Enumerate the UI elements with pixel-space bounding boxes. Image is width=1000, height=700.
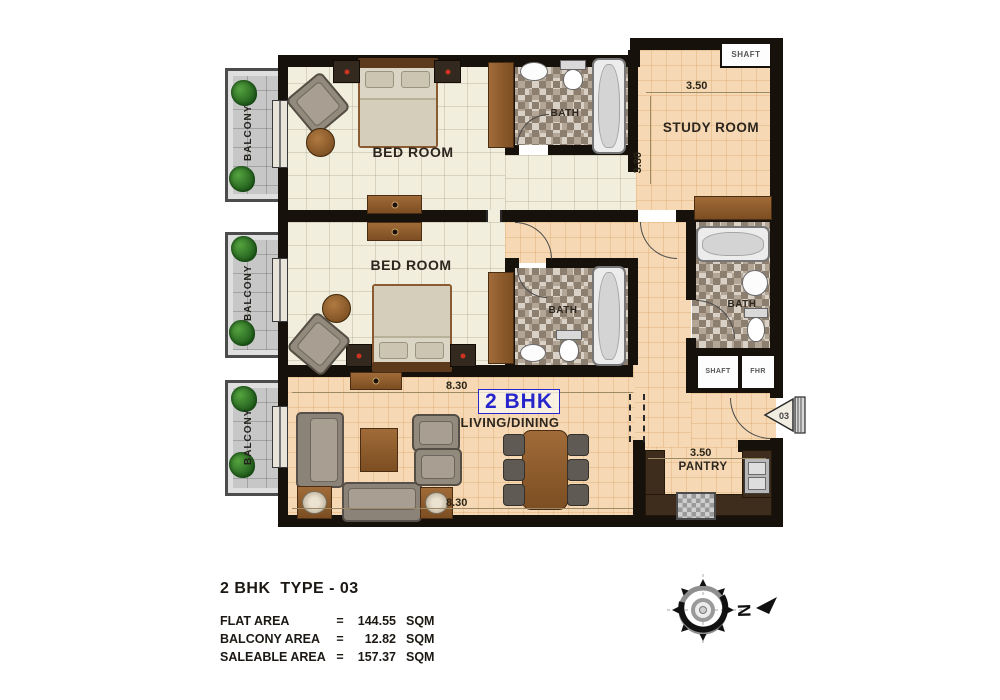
dresser-knob [392, 229, 397, 234]
study-width-dimline [646, 92, 770, 93]
wall-opening-marker [486, 210, 502, 222]
balcony1-sliding-door [272, 100, 288, 168]
shaft-top-box: SHAFT [720, 42, 772, 68]
living-label: LIVING/DINING [458, 416, 562, 430]
bed-headboard [372, 362, 452, 372]
bedroom2-bed [372, 284, 452, 372]
living-tv-console [350, 372, 402, 390]
bath3-tub [696, 226, 770, 262]
bedroom1-label: BED ROOM [358, 145, 468, 160]
entry-door-leaf [795, 397, 805, 433]
bedroom1-nightstand-left [333, 60, 360, 83]
bed-duvet [374, 286, 450, 338]
balcony2-sliding-door [272, 258, 288, 322]
balcony3-label: BALCONY [244, 400, 254, 474]
dining-table [522, 430, 568, 510]
pantry-label: PANTRY [672, 461, 734, 474]
fhr-box: FHR [740, 354, 776, 390]
balcony3-sliding-door [272, 406, 288, 468]
entry-number: 03 [779, 411, 789, 421]
bedroom1-nightstand-right [434, 60, 461, 83]
legend-row-flat-area: FLAT AREA = 144.55 SQM [220, 614, 480, 628]
legend-unit: SQM [406, 650, 434, 664]
dining-chair [503, 459, 525, 481]
sofa-cushion [310, 418, 338, 482]
bedroom2-nightstand-right [450, 344, 476, 367]
shaft-top-label: SHAFT [731, 51, 760, 60]
table-lamp-icon [425, 492, 448, 514]
plan-title: 2 BHK TYPE - 03 [220, 580, 480, 598]
bedroom1-wardrobe [488, 62, 514, 148]
legend-label: SALEABLE AREA [220, 650, 332, 664]
living-bottom-dim: 8.30 [446, 497, 467, 509]
bath1-toilet [560, 60, 586, 90]
dining-chair [503, 484, 525, 506]
bed-pillow [415, 342, 444, 359]
bath2-tub [592, 266, 626, 366]
living-sofa-horizontal [342, 482, 422, 522]
bedroom2-round-table [322, 294, 351, 323]
bedroom1-dresser [367, 195, 422, 214]
bath2-sink [520, 344, 546, 362]
legend-equals: = [332, 632, 348, 646]
compass-north-label: N [734, 604, 754, 618]
bath3-toilet [744, 308, 768, 342]
legend-equals: = [332, 614, 348, 628]
legend-unit: SQM [406, 632, 434, 646]
pantry-stove [676, 492, 716, 520]
hall-opening-marker [629, 394, 645, 442]
living-top-dimline [292, 392, 633, 393]
study-width-dim: 3.50 [686, 80, 707, 92]
bedroom2-dresser [367, 222, 422, 241]
legend-equals: = [332, 650, 348, 664]
bath1-sink [520, 62, 548, 81]
bath2-label: BATH [538, 305, 588, 316]
legend: 2 BHK TYPE - 03 FLAT AREA = 144.55 SQM B… [220, 580, 480, 664]
bedroom1-round-table [306, 128, 335, 157]
bed-pillow [401, 71, 430, 88]
sofa-cushion [348, 488, 416, 510]
fhr-label: FHR [750, 368, 766, 376]
balcony1-label: BALCONY [244, 96, 254, 170]
console-knob [374, 379, 379, 384]
armchair-cushion [296, 321, 342, 368]
wall-bed1-bed2 [278, 210, 638, 222]
bedroom2-nightstand-left [346, 344, 372, 367]
living-lamp-table [297, 486, 332, 519]
bed-duvet [360, 98, 436, 146]
study-desk [694, 196, 772, 220]
entry-marker: 03 [762, 394, 808, 438]
toilet-bowl [747, 317, 765, 342]
bath1-label: BATH [540, 108, 590, 119]
armchair-cushion [421, 455, 455, 479]
living-top-dim: 8.30 [446, 380, 467, 392]
living-armchair [414, 448, 462, 486]
floorplan-canvas: SHAFT SHAFT FHR [0, 0, 1000, 700]
living-coffee-table [360, 428, 398, 472]
legend-value: 157.37 [348, 650, 396, 664]
armchair-cushion [419, 421, 453, 445]
armchair-cushion [295, 81, 341, 128]
study-height-dimline [650, 96, 651, 184]
legend-value: 144.55 [348, 614, 396, 628]
toilet-bowl [559, 339, 579, 362]
dining-chair [567, 434, 589, 456]
pantry-sink-unit [744, 458, 770, 494]
dresser-knob [392, 202, 397, 207]
bath1-tub [592, 58, 626, 154]
wall-bath2-top-a [505, 258, 519, 268]
unit-type-badge: 2 BHK [478, 389, 560, 414]
dining-chair [567, 484, 589, 506]
toilet-bowl [563, 69, 583, 90]
bedroom2-label: BED ROOM [356, 258, 466, 273]
legend-row-balcony-area: BALCONY AREA = 12.82 SQM [220, 632, 480, 646]
lobby1-floor [505, 155, 638, 210]
study-label: STUDY ROOM [656, 121, 766, 136]
bed-headboard [358, 58, 438, 68]
compass-north-arrow-icon [756, 597, 777, 614]
wall-bath3-left-a [686, 222, 696, 300]
wall-bath2-right [628, 258, 638, 365]
bath3-sink [742, 270, 768, 296]
bed-pillow [379, 342, 408, 359]
shaft-mid-label: SHAFT [705, 368, 730, 376]
table-lamp-icon [302, 491, 327, 514]
bath2-toilet [556, 330, 582, 362]
bedroom1-bed [358, 58, 438, 148]
dining-chair [567, 459, 589, 481]
living-sofa-vertical [296, 412, 344, 488]
legend-row-saleable-area: SALEABLE AREA = 157.37 SQM [220, 650, 480, 664]
shaft-mid-box: SHAFT [696, 354, 740, 390]
living-armchair [412, 414, 460, 452]
pantry-width-dim: 3.50 [690, 447, 711, 459]
sink-basin [748, 462, 766, 475]
bath3-label: BATH [718, 299, 766, 310]
wall-pantry-left [633, 440, 645, 517]
balcony2-label: BALCONY [244, 256, 254, 330]
legend-label: BALCONY AREA [220, 632, 332, 646]
compass-icon: N [656, 572, 786, 652]
study-height-dim: 3.80 [632, 152, 644, 173]
dining-chair [503, 434, 525, 456]
legend-unit: SQM [406, 614, 434, 628]
sink-basin [748, 477, 766, 490]
wall-bath2-top-b [546, 258, 638, 268]
bedroom2-wardrobe [488, 272, 514, 364]
bed-pillow [365, 71, 394, 88]
legend-value: 12.82 [348, 632, 396, 646]
legend-label: FLAT AREA [220, 614, 332, 628]
